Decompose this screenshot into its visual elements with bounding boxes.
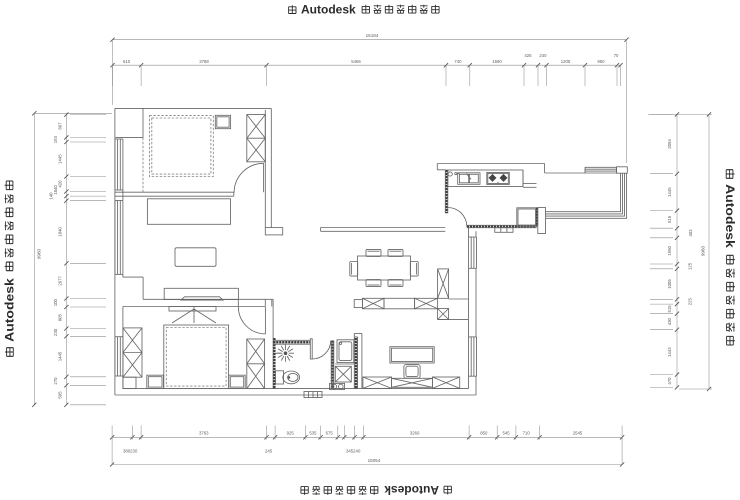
svg-text:240: 240 (539, 53, 547, 58)
svg-text:470: 470 (667, 377, 672, 385)
svg-text:3788: 3788 (199, 59, 209, 64)
svg-text:430: 430 (667, 318, 672, 326)
svg-text:9960: 9960 (701, 245, 706, 256)
svg-text:193: 193 (53, 136, 58, 144)
svg-text:420: 420 (58, 180, 63, 188)
svg-text:960: 960 (597, 59, 605, 64)
svg-text:425: 425 (524, 53, 532, 58)
svg-text:1005: 1005 (667, 279, 672, 289)
svg-text:805: 805 (58, 314, 63, 322)
svg-text:230: 230 (53, 328, 58, 336)
svg-text:100: 100 (53, 299, 58, 307)
svg-text:2677: 2677 (58, 276, 63, 286)
svg-text:15184: 15184 (366, 33, 379, 38)
svg-text:1445: 1445 (58, 351, 63, 361)
svg-text:1443: 1443 (667, 347, 672, 357)
svg-text:3763: 3763 (199, 431, 209, 436)
svg-text:140: 140 (49, 192, 54, 200)
svg-text:Autodesk: Autodesk (723, 184, 737, 248)
svg-text:245: 245 (265, 448, 273, 453)
svg-text:1840: 1840 (58, 227, 63, 237)
svg-text:1445: 1445 (58, 154, 63, 164)
svg-text:1205: 1205 (561, 59, 571, 64)
svg-text:740: 740 (454, 59, 462, 64)
svg-text:515: 515 (667, 305, 672, 313)
svg-text:867: 867 (58, 122, 63, 130)
svg-text:5466: 5466 (351, 59, 361, 64)
svg-text:710: 710 (523, 431, 531, 436)
svg-text:380230: 380230 (123, 448, 138, 453)
svg-text:225: 225 (688, 298, 693, 306)
svg-text:505: 505 (58, 391, 63, 399)
svg-text:675: 675 (326, 431, 334, 436)
svg-text:70: 70 (614, 53, 619, 58)
svg-text:1445: 1445 (667, 187, 672, 197)
svg-text:1690: 1690 (492, 59, 502, 64)
svg-text:515: 515 (667, 215, 672, 223)
svg-text:3266: 3266 (410, 431, 420, 436)
svg-text:535: 535 (309, 431, 317, 436)
svg-text:403: 403 (688, 229, 693, 237)
svg-text:Autodesk: Autodesk (384, 483, 439, 497)
svg-text:125: 125 (688, 262, 693, 270)
svg-text:2094: 2094 (667, 139, 672, 149)
svg-text:Autodesk: Autodesk (2, 277, 16, 341)
svg-text:Autodesk: Autodesk (301, 3, 356, 17)
svg-text:345240: 345240 (346, 448, 361, 453)
svg-text:610: 610 (123, 59, 131, 64)
svg-text:9960: 9960 (37, 248, 42, 259)
svg-text:1840: 1840 (53, 185, 58, 195)
svg-text:2545: 2545 (573, 431, 583, 436)
svg-text:925: 925 (287, 431, 295, 436)
svg-text:1950: 1950 (667, 246, 672, 256)
svg-text:270: 270 (53, 377, 58, 385)
svg-text:15054: 15054 (368, 458, 381, 463)
svg-text:545: 545 (503, 431, 511, 436)
svg-text:850: 850 (480, 431, 488, 436)
